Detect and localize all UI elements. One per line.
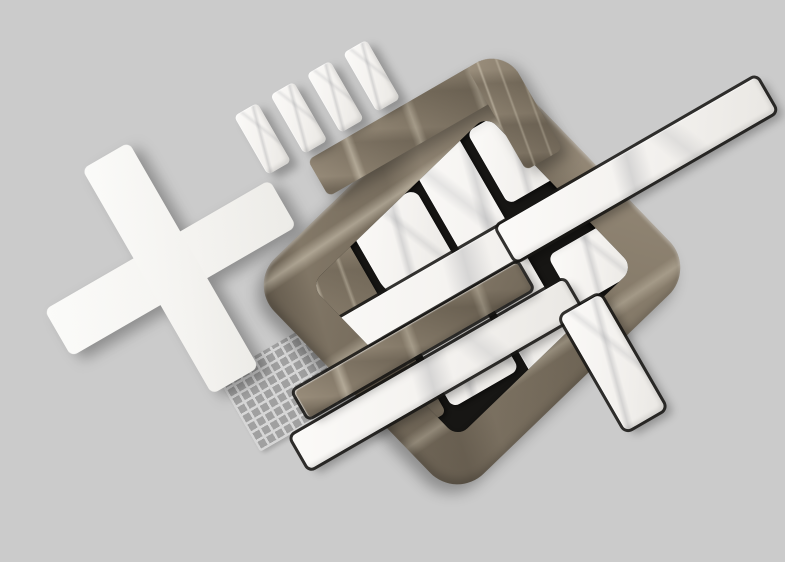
brown-l-band-vertical — [467, 47, 562, 170]
mosaic-product-photo — [0, 0, 785, 562]
pattern-over-group — [0, 0, 785, 562]
